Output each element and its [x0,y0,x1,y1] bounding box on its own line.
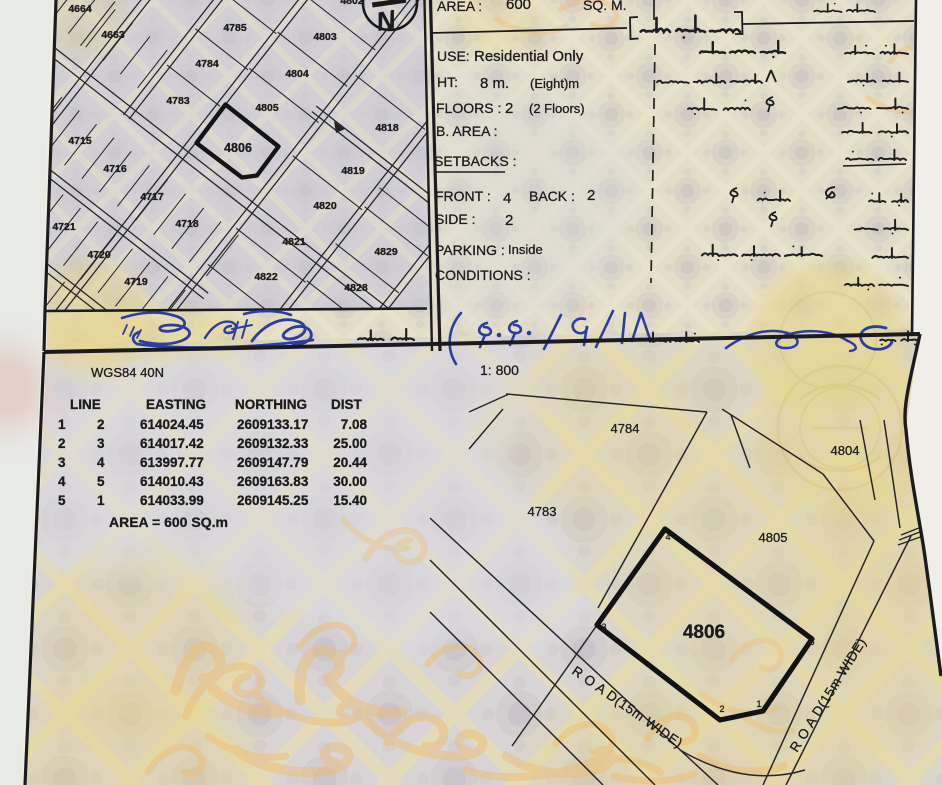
svg-text:4820: 4820 [313,200,337,212]
svg-text:WGS84 40N: WGS84 40N [91,365,164,380]
svg-text:2609147.79: 2609147.79 [237,455,308,470]
svg-text:3: 3 [601,622,606,632]
svg-text:SIDE :: SIDE : [435,211,475,227]
svg-text:AREA = 600 SQ.m: AREA = 600 SQ.m [109,514,228,530]
svg-text:AREA :: AREA : [437,0,482,14]
svg-text:25.00: 25.00 [333,436,367,451]
svg-text:2609163.83: 2609163.83 [237,474,309,489]
svg-text:3: 3 [97,436,105,451]
svg-text:1: 1 [97,493,105,508]
svg-text:600: 600 [506,0,531,13]
svg-text:20.44: 20.44 [333,455,367,470]
svg-text:30.00: 30.00 [333,474,367,489]
svg-text:4805: 4805 [759,530,788,545]
svg-text:4821: 4821 [282,236,306,248]
svg-text:614017.42: 614017.42 [140,436,204,451]
svg-text:5: 5 [58,493,66,508]
svg-text:7.08: 7.08 [341,417,368,432]
svg-text:2609133.17: 2609133.17 [237,417,308,432]
svg-text:4715: 4715 [68,135,92,147]
svg-text:EASTING: EASTING [146,397,206,412]
svg-text:DIST: DIST [331,397,363,412]
svg-text:BACK :: BACK : [529,188,575,204]
svg-text:613997.77: 613997.77 [140,455,204,470]
svg-text:4806: 4806 [683,622,725,643]
svg-text:15.40: 15.40 [333,493,367,508]
svg-text:5: 5 [809,637,814,647]
svg-text:2609145.25: 2609145.25 [237,493,309,508]
svg-text:(2 Floors): (2 Floors) [529,101,585,116]
svg-text:4718: 4718 [175,218,199,230]
svg-text:4717: 4717 [140,191,164,203]
svg-text:Residential Only: Residential Only [474,48,584,65]
svg-text:4804: 4804 [831,443,860,458]
svg-text:2: 2 [587,187,595,204]
svg-text:4784: 4784 [611,421,640,436]
svg-text:4: 4 [665,532,670,542]
svg-text:4: 4 [58,474,66,489]
svg-text:FLOORS :: FLOORS : [436,100,501,116]
svg-text:2609132.33: 2609132.33 [237,436,309,451]
svg-text:2: 2 [97,417,105,432]
svg-text:614010.43: 614010.43 [140,474,204,489]
svg-text:4803: 4803 [313,31,337,43]
svg-text:1: 1 [756,699,761,709]
svg-text:4822: 4822 [254,271,278,283]
svg-text:4716: 4716 [103,163,127,175]
svg-text:SQ. M.: SQ. M. [583,0,627,13]
svg-text:SETBACKS :: SETBACKS : [434,153,516,169]
svg-text:2: 2 [505,212,513,229]
svg-text:1: 1 [58,417,66,432]
svg-text:2: 2 [719,704,724,714]
svg-text:5: 5 [97,474,105,489]
svg-text:(Eight)m: (Eight)m [530,76,579,91]
svg-text:4818: 4818 [375,122,399,134]
svg-text:8 m.: 8 m. [480,75,509,92]
svg-text:4829: 4829 [374,246,398,258]
svg-text:4720: 4720 [87,249,111,261]
svg-text:B. AREA :: B. AREA : [436,123,497,139]
svg-text:CONDITIONS :: CONDITIONS : [435,267,531,283]
svg-text:4663: 4663 [101,29,125,41]
svg-text:4819: 4819 [341,165,365,177]
svg-text:4784: 4784 [195,58,219,70]
svg-text:PARKING :: PARKING : [435,242,505,258]
svg-text:4664: 4664 [68,3,92,15]
svg-text:3: 3 [58,455,66,470]
svg-text:614033.99: 614033.99 [140,493,204,508]
svg-text:4802: 4802 [340,0,364,7]
svg-text:4805: 4805 [255,102,279,114]
svg-text:4785: 4785 [223,22,247,34]
svg-text:FRONT :: FRONT : [435,188,491,204]
svg-text:4783: 4783 [528,504,557,519]
svg-text:614024.45: 614024.45 [140,417,204,432]
svg-text:1: 800: 1: 800 [480,362,519,378]
svg-text:4783: 4783 [166,95,190,107]
svg-text:4828: 4828 [344,282,368,294]
svg-text:4721: 4721 [52,221,76,233]
svg-text:4: 4 [503,190,511,207]
svg-text:4806: 4806 [224,141,252,155]
svg-text:NORTHING: NORTHING [235,397,307,412]
svg-text:HT:: HT: [437,74,458,90]
svg-text:4804: 4804 [285,68,309,80]
svg-text:LINE: LINE [70,397,101,412]
svg-text:4719: 4719 [124,276,148,288]
svg-text:4: 4 [97,455,105,470]
svg-text:Inside: Inside [508,242,543,257]
svg-text:2: 2 [505,100,513,117]
svg-text:USE:: USE: [437,48,470,64]
svg-text:2: 2 [58,436,66,451]
